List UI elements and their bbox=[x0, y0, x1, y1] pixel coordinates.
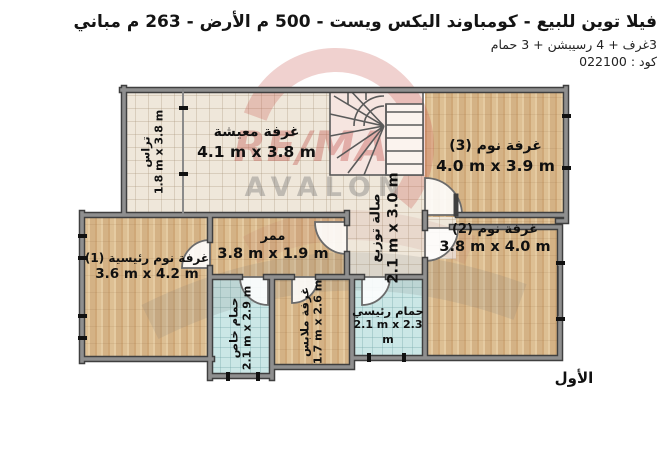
bedroom2-label: غرفة نوم (2) 3.8 m x 4.0 m bbox=[430, 222, 560, 257]
terrace-label: تراس 1.8 m x 3.8 m bbox=[122, 90, 183, 213]
main-bath-label: حمام رئيسي 2.1 m x 2.3 m bbox=[350, 304, 426, 347]
private-bath-label: حمام خاص 2.1 m x 2.9 m bbox=[210, 277, 272, 378]
hall-label: صالة توزيع 2.1 m x 3.0 m bbox=[347, 178, 425, 278]
living-room-label: غرفة معيشة 4.1 m x 3.8 m bbox=[183, 124, 330, 162]
bedroom3-label: غرفة نوم (3) 4.0 m x 3.9 m bbox=[425, 138, 566, 176]
floor-name-label: الأول bbox=[538, 369, 610, 387]
staircase-icon bbox=[330, 88, 423, 175]
master-bedroom-label: غرفة نوم رئيسية (1) 3.6 m x 4.2 m bbox=[84, 251, 210, 284]
dressing-room-label: غرفة ملابس 1.7 m x 2.6 m bbox=[272, 277, 352, 367]
corridor-label: ممر 3.8 m x 1.9 m bbox=[212, 229, 334, 264]
